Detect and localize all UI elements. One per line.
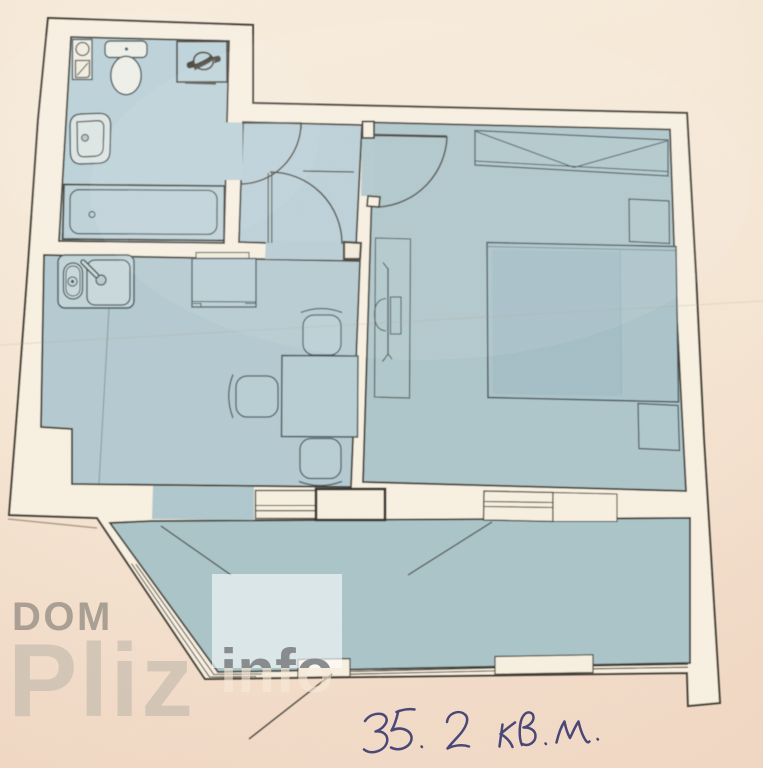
svg-text:Pliz: Pliz	[8, 623, 195, 739]
